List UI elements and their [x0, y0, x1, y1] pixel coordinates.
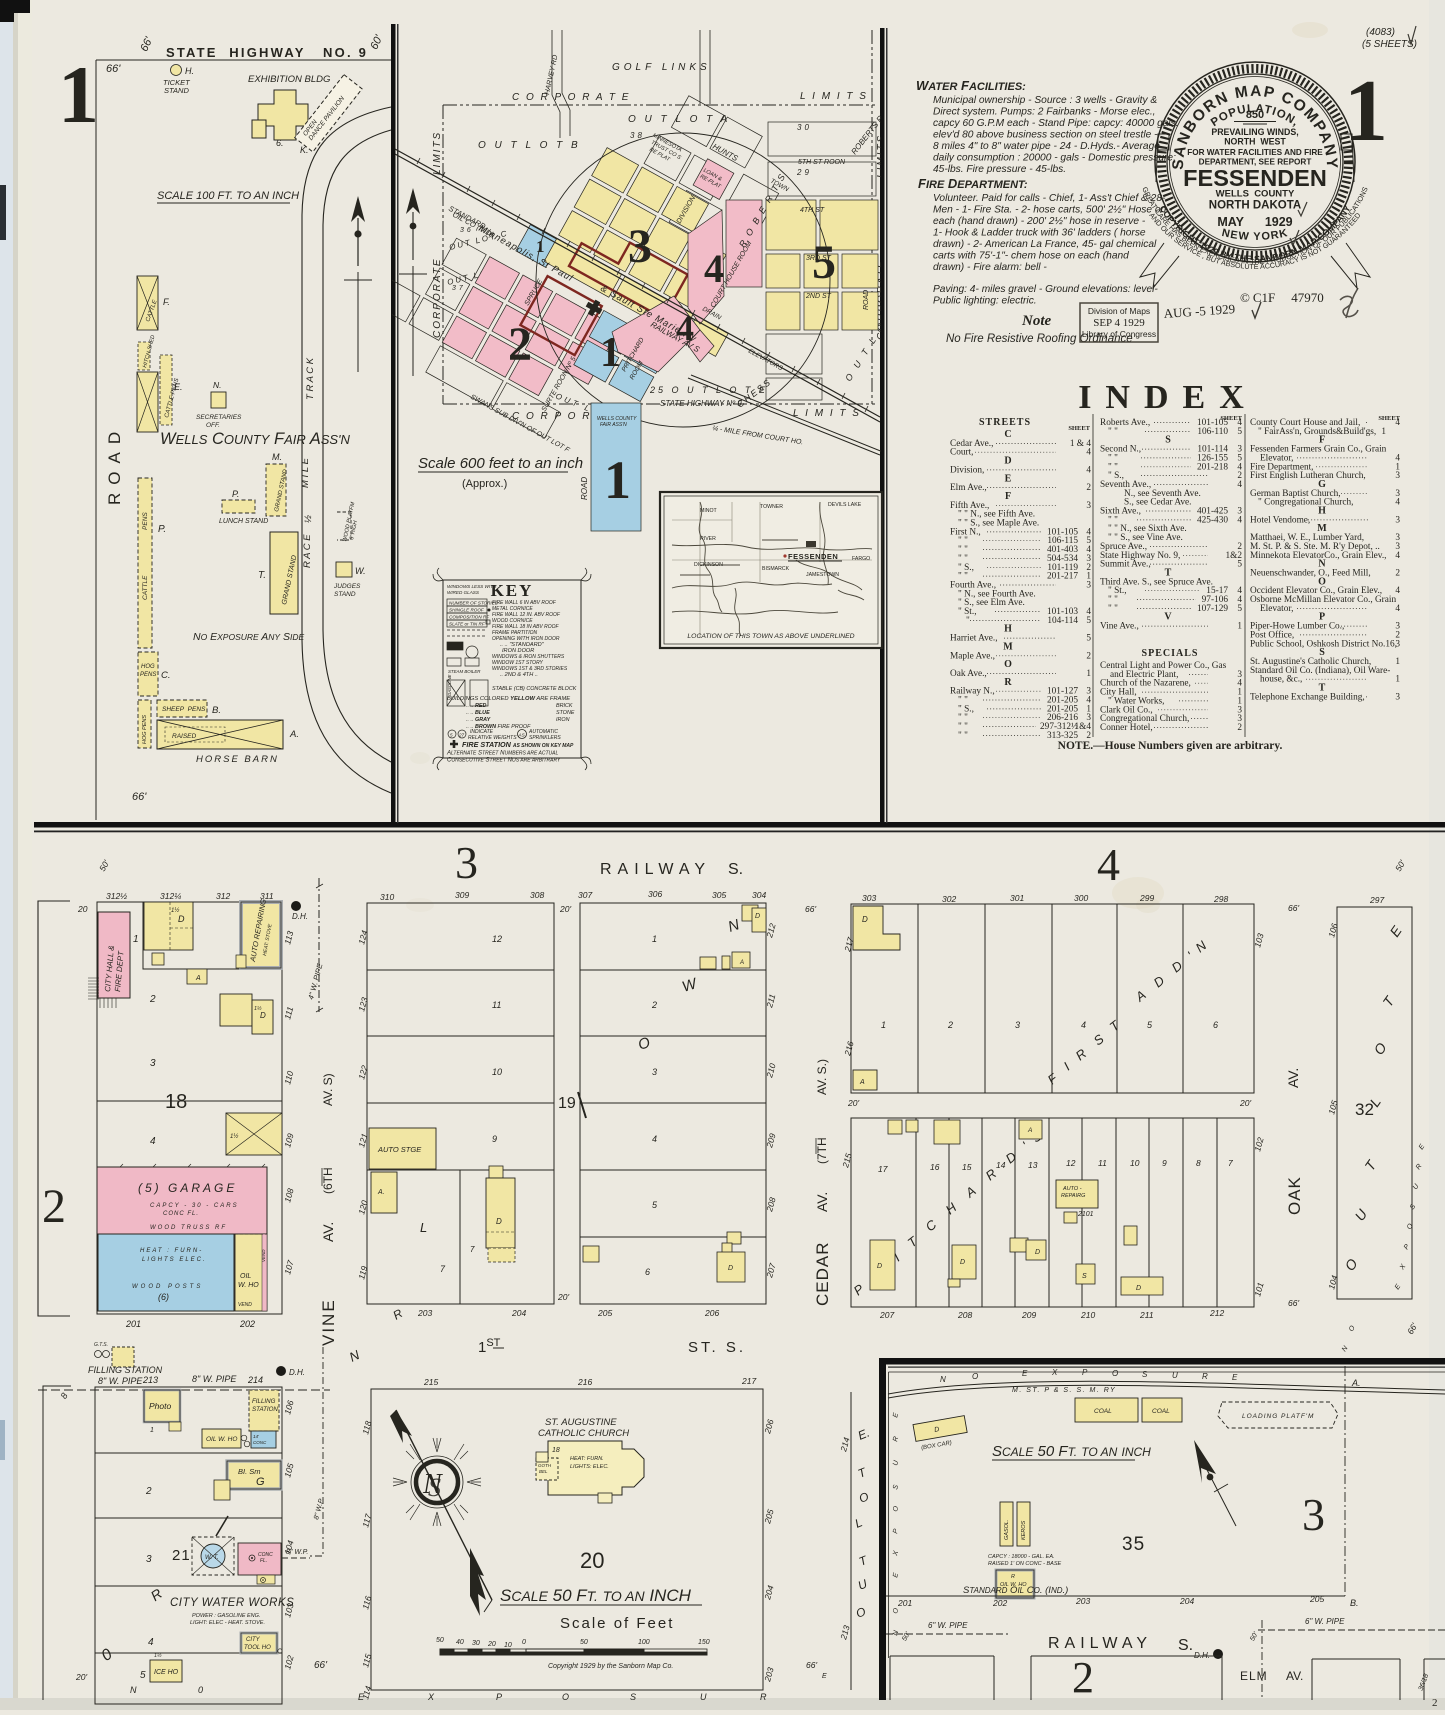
- svg-text:1: 1: [133, 934, 139, 945]
- svg-text:1½: 1½: [171, 907, 179, 914]
- svg-text:NORTH DAKOTA: NORTH DAKOTA: [1209, 200, 1301, 212]
- svg-text:OFF.: OFF.: [206, 422, 220, 429]
- svg-text:Sixth Ave.,: Sixth Ave.,: [1100, 507, 1141, 517]
- svg-text:310: 310: [380, 892, 394, 902]
- svg-text:Scale of Feet: Scale of Feet: [560, 1615, 674, 1632]
- svg-text:4: 4: [1395, 418, 1400, 428]
- svg-text:S: S: [1165, 435, 1171, 446]
- svg-text:12: 12: [1066, 1158, 1076, 1168]
- svg-text:JUDGES: JUDGES: [333, 583, 361, 590]
- svg-text:202: 202: [992, 1598, 1007, 1608]
- svg-text:E: E: [1005, 473, 1012, 484]
- svg-text:40: 40: [456, 1639, 464, 1646]
- svg-text:150: 150: [698, 1639, 710, 1646]
- svg-text:OAK: OAK: [1285, 1176, 1304, 1215]
- svg-text:M. ST. P & S. S. M. RY: M. ST. P & S. S. M. RY: [1012, 1387, 1116, 1394]
- svg-text:66': 66': [132, 791, 147, 803]
- svg-text:E: E: [1022, 1369, 1028, 1378]
- svg-text:2: 2: [1395, 569, 1400, 579]
- svg-text:30: 30: [797, 123, 812, 132]
- svg-text:Municipal ownership - Source :: Municipal ownership - Source : 3 wells -…: [933, 95, 1157, 106]
- svg-text:4: 4: [1237, 480, 1242, 490]
- svg-text:CATTLE: CATTLE: [142, 575, 149, 600]
- svg-text:EXHIBITION BLDG: EXHIBITION BLDG: [248, 74, 330, 85]
- svg-text:Public lighting: electric.: Public lighting: electric.: [933, 296, 1037, 307]
- svg-text:1: 1: [600, 330, 621, 376]
- svg-text:4: 4: [652, 1134, 657, 1144]
- svg-text:45-lbs. Fire pressure - 45-lb: 45-lbs. Fire pressure - 45-lbs.: [933, 164, 1066, 175]
- svg-text:1: 1: [652, 934, 657, 944]
- svg-text:O U T L O T A: O U T L O T A: [628, 114, 730, 125]
- svg-text:O U T L O T B: O U T L O T B: [478, 140, 581, 151]
- svg-text:1: 1: [1237, 622, 1242, 632]
- svg-text:20': 20': [1239, 1098, 1251, 1108]
- svg-text:3: 3: [150, 1058, 156, 1069]
- svg-text:PENS: PENS: [142, 512, 149, 530]
- svg-text:8" W. PIPE: 8" W. PIPE: [98, 1376, 143, 1386]
- svg-text:SECRETARIES: SECRETARIES: [196, 414, 242, 421]
- svg-text:104-114: 104-114: [1047, 616, 1078, 626]
- svg-text:211: 211: [1139, 1310, 1154, 1320]
- svg-text:1: 1: [1086, 669, 1091, 679]
- svg-text:T R A C K: T R A C K: [305, 357, 316, 400]
- svg-text:PENS: PENS: [140, 672, 156, 678]
- svg-text:5: 5: [450, 733, 453, 738]
- svg-text:1: 1: [58, 49, 99, 140]
- svg-text:32: 32: [1355, 1100, 1374, 1119]
- svg-text:FL.: FL.: [260, 1558, 267, 1564]
- svg-text:309: 309: [455, 890, 469, 900]
- svg-text:0: 0: [198, 1685, 203, 1695]
- svg-text:8" W. PIPE: 8" W. PIPE: [192, 1374, 237, 1384]
- svg-text:303: 303: [862, 893, 876, 903]
- svg-text:Harriet Ave.,: Harriet Ave.,: [950, 634, 998, 644]
- svg-text:B.: B.: [1350, 1598, 1359, 1608]
- svg-text:Elevator,: Elevator,: [1260, 604, 1293, 614]
- svg-text:U: U: [700, 1692, 709, 1702]
- svg-text:300: 300: [1074, 893, 1088, 903]
- svg-text:Vine Ave.,: Vine Ave.,: [1100, 622, 1139, 632]
- svg-text:A: A: [859, 1079, 865, 1086]
- svg-text:216: 216: [577, 1377, 592, 1387]
- svg-text:COAL: COAL: [1094, 1408, 1112, 1415]
- svg-text:NOTE.—House Numbers given are: NOTE.—House Numbers given are arbitrary.: [1058, 740, 1283, 752]
- svg-text:312¼: 312¼: [160, 891, 181, 901]
- svg-text:7: 7: [470, 1245, 475, 1254]
- svg-text:N: N: [130, 1685, 137, 1695]
- svg-text:JAMESTOWN: JAMESTOWN: [806, 572, 839, 578]
- svg-text:19: 19: [558, 1095, 576, 1112]
- svg-text:HORSE BARN: HORSE BARN: [196, 754, 279, 765]
- svg-text:AUTO -: AUTO -: [1062, 1186, 1082, 1192]
- svg-text:D: D: [1136, 1285, 1141, 1292]
- svg-text:CAPCY - 30 - CARS: CAPCY - 30 - CARS: [150, 1203, 239, 1209]
- svg-text:2: 2: [1237, 723, 1242, 733]
- svg-text:OIL W. HO: OIL W. HO: [206, 1436, 237, 1443]
- svg-text:Railway N.,: Railway N.,: [950, 687, 995, 697]
- svg-text:IRON: IRON: [556, 717, 570, 723]
- svg-text:Elm Ave.,: Elm Ave.,: [950, 483, 987, 493]
- svg-text:WOOD TRUSS RF: WOOD TRUSS RF: [150, 1225, 227, 1231]
- svg-text:R: R: [1011, 1574, 1015, 1580]
- svg-text:4: 4: [1097, 839, 1120, 890]
- svg-text:F.: F.: [163, 297, 170, 307]
- svg-text:A: A: [739, 960, 744, 966]
- svg-text:S.: S.: [1178, 1637, 1193, 1654]
- svg-text:TOOL HO: TOOL HO: [244, 1645, 271, 1651]
- svg-text:WATER FACILITIES:: WATER FACILITIES:: [916, 78, 1026, 93]
- svg-text:(Approx.): (Approx.): [462, 478, 507, 490]
- svg-text:HEAT: FURN.: HEAT: FURN.: [570, 1456, 604, 1462]
- svg-text:1½: 1½: [154, 1652, 162, 1659]
- svg-text:35: 35: [1122, 1534, 1145, 1555]
- svg-text:N.: N.: [213, 380, 222, 390]
- svg-text:(6TH: (6TH: [321, 1167, 335, 1194]
- svg-text:E: E: [822, 1673, 827, 1680]
- svg-text:(4083): (4083): [1366, 27, 1395, 38]
- svg-text:2: 2: [1086, 651, 1091, 661]
- svg-text:1: 1: [881, 1020, 886, 1030]
- svg-text:E: E: [1232, 1373, 1238, 1382]
- svg-text:FAIR ASS'N: FAIR ASS'N: [600, 422, 627, 428]
- svg-text:1: 1: [604, 450, 631, 510]
- svg-text:2ND ST: 2ND ST: [805, 293, 832, 300]
- svg-text:First English Lutheran Church,: First English Lutheran Church,: [1250, 471, 1366, 481]
- svg-text:13: 13: [1028, 1160, 1038, 1170]
- svg-text:D: D: [1004, 456, 1011, 467]
- svg-text:.. .. BLU: .. .. BLUE: [466, 710, 490, 716]
- svg-text:297: 297: [1369, 895, 1384, 905]
- svg-text:½: ½: [303, 515, 314, 523]
- svg-text:203: 203: [1075, 1596, 1090, 1606]
- svg-text:10: 10: [1130, 1158, 1140, 1168]
- svg-text:Copyright 1929 by the Sanborn: Copyright 1929 by the Sanborn Map Co.: [548, 1663, 673, 1670]
- svg-text:3: 3: [1395, 515, 1400, 525]
- svg-text:66': 66': [1288, 903, 1299, 913]
- svg-text:VINE: VINE: [319, 1298, 338, 1346]
- svg-text:SPECIALS: SPECIALS: [1142, 648, 1199, 659]
- svg-text:209: 209: [1021, 1310, 1036, 1320]
- svg-text:66': 66': [1288, 1298, 1299, 1308]
- svg-text:CEDAR: CEDAR: [813, 1241, 832, 1306]
- svg-text:27: 27: [458, 733, 465, 738]
- svg-text:D: D: [755, 913, 760, 920]
- svg-text:ROAD: ROAD: [580, 477, 589, 500]
- svg-text:20: 20: [487, 1641, 496, 1648]
- svg-text:L I M I T S: L I M I T S: [800, 91, 868, 102]
- svg-text:66': 66': [314, 1660, 328, 1671]
- svg-text:302: 302: [942, 894, 956, 904]
- svg-text:3: 3: [1395, 692, 1400, 702]
- svg-text:305: 305: [712, 890, 726, 900]
- svg-text:H: H: [1318, 506, 1326, 517]
- svg-text:20': 20': [847, 1098, 859, 1108]
- svg-text:E.: E.: [174, 382, 183, 392]
- svg-text:2: 2: [1432, 1697, 1438, 1709]
- svg-text:BEL: BEL: [539, 1469, 548, 1474]
- svg-text:850: 850: [1246, 109, 1264, 121]
- svg-text:LIGHTS: ELEC.: LIGHTS: ELEC.: [570, 1464, 609, 1470]
- svg-text:LOADING PLATF'M: LOADING PLATF'M: [1242, 1413, 1314, 1420]
- svg-text:LUNCH STAND: LUNCH STAND: [219, 518, 268, 525]
- svg-text:BUILDINGS COLORED YELLOW ARE F: BUILDINGS COLORED YELLOW ARE FRAME: [447, 696, 570, 702]
- svg-text:O: O: [562, 1692, 571, 1702]
- svg-text:R: R: [1202, 1372, 1208, 1381]
- svg-text:ST. S.: ST. S.: [688, 1339, 746, 1356]
- svg-text:P.: P.: [158, 524, 166, 535]
- svg-text:M I L E: M I L E: [300, 457, 311, 488]
- svg-text:(7TH: (7TH: [815, 1137, 829, 1164]
- svg-text:298: 298: [1213, 894, 1228, 904]
- svg-text:37: 37: [452, 285, 466, 292]
- svg-text:.. .. RED: .. .. RED: [466, 703, 486, 709]
- svg-text:(5) GARAGE: (5) GARAGE: [138, 1181, 237, 1195]
- svg-text:.. .. GRA: .. .. GRAY: [466, 717, 491, 723]
- svg-text:VEND: VEND: [238, 1302, 252, 1308]
- svg-text:4: 4: [1395, 604, 1400, 614]
- svg-text:CATHOLIC CHURCH: CATHOLIC CHURCH: [538, 1428, 629, 1439]
- svg-text:ELM: ELM: [1240, 1669, 1268, 1683]
- svg-text:308: 308: [530, 890, 544, 900]
- svg-text:12: 12: [492, 934, 502, 944]
- svg-text:" ": " ": [1108, 604, 1118, 614]
- svg-text:201: 201: [125, 1319, 141, 1329]
- svg-text:1: 1: [1395, 657, 1400, 667]
- svg-text:STANDARD OIL CO. (IND.): STANDARD OIL CO. (IND.): [963, 1585, 1068, 1596]
- svg-text:" ": " ": [1108, 427, 1118, 437]
- svg-text:LOCATION OF THIS TOWN AS ABOVE: LOCATION OF THIS TOWN AS ABOVE UNDERLINE…: [687, 633, 854, 640]
- svg-text:4TH ST: 4TH ST: [800, 207, 825, 214]
- svg-text:STEAM BOILER: STEAM BOILER: [448, 669, 481, 674]
- svg-text:STATE HIGHWAY Nº 9: STATE HIGHWAY Nº 9: [660, 399, 742, 408]
- svg-text:50: 50: [436, 1637, 444, 1644]
- svg-text:SCALE 50 FT. TO AN INCH: SCALE 50 FT. TO AN INCH: [500, 1586, 692, 1605]
- svg-text:SHEET: SHEET: [1068, 425, 1090, 432]
- svg-text:RIVER: RIVER: [700, 536, 716, 542]
- svg-text:": ": [966, 616, 970, 626]
- svg-text:2: 2: [42, 1180, 66, 1233]
- svg-text:SLATE or TIN RF: SLATE or TIN RF: [449, 622, 486, 627]
- svg-text:D: D: [496, 1217, 502, 1226]
- svg-text:SHEEP PENS: SHEEP PENS: [162, 706, 206, 713]
- svg-text:Photo: Photo: [149, 1401, 171, 1411]
- svg-text:204: 204: [1179, 1596, 1194, 1606]
- svg-text:T.: T.: [258, 570, 266, 581]
- svg-text:1- Hook & Ladder truck with: 1- Hook & Ladder truck with 36' ladders …: [933, 228, 1146, 239]
- svg-text:HEAT : FURN-: HEAT : FURN-: [140, 1248, 203, 1254]
- svg-text:15: 15: [962, 1162, 972, 1172]
- svg-text:Scale 600 feet to an inch: Scale 600 feet to an inch: [418, 455, 583, 472]
- svg-text:BISMARCK: BISMARCK: [762, 566, 790, 572]
- svg-text:2: 2: [947, 1020, 953, 1030]
- svg-text:LIMITS: LIMITS: [432, 131, 443, 175]
- svg-text:Men - 1- Fire Sta. - 2- hose c: Men - 1- Fire Sta. - 2- hose carts, 500'…: [933, 205, 1167, 216]
- svg-text:carts with 75'-1"- chem hose: carts with 75'-1"- chem hose on each (ha…: [933, 251, 1129, 262]
- svg-text:E: E: [358, 1692, 366, 1702]
- svg-text:213: 213: [142, 1375, 158, 1385]
- svg-text:2: 2: [145, 1486, 152, 1497]
- svg-text:2: 2: [149, 994, 156, 1005]
- svg-text:66': 66': [806, 1660, 817, 1670]
- svg-text:INDEX: INDEX: [1078, 379, 1258, 416]
- svg-text:O: O: [972, 1372, 978, 1381]
- svg-text:217: 217: [741, 1376, 756, 1386]
- svg-text:FIRE DEPARTMENT:: FIRE DEPARTMENT:: [918, 176, 1028, 191]
- svg-text:14: 14: [996, 1160, 1006, 1170]
- svg-text:AV. S): AV. S): [321, 1073, 335, 1106]
- svg-text:D: D: [1035, 1249, 1040, 1256]
- svg-text:1½: 1½: [230, 1133, 238, 1140]
- svg-text:SHINGLE ROOF: SHINGLE ROOF: [449, 608, 485, 613]
- svg-text:WINDOWS LESS WITH: WINDOWS LESS WITH: [447, 584, 497, 589]
- svg-text:3: 3: [1395, 471, 1400, 481]
- svg-text:AV.: AV.: [320, 1222, 336, 1242]
- svg-text:Oak Ave.,: Oak Ave.,: [950, 669, 987, 679]
- svg-text:202: 202: [239, 1319, 255, 1329]
- svg-text:CONSECUTIVE STREET NOS ARE ARB: CONSECUTIVE STREET NOS ARE ARBITRARY: [447, 758, 561, 764]
- svg-text:5: 5: [1237, 560, 1242, 570]
- svg-text:CONC: CONC: [253, 1440, 267, 1445]
- svg-text:O: O: [1112, 1369, 1118, 1378]
- svg-text:2: 2: [1072, 1653, 1094, 1702]
- svg-text:Telephone Exchange Building,: Telephone Exchange Building,: [1250, 692, 1365, 702]
- svg-text:306: 306: [648, 889, 662, 899]
- svg-text:3: 3: [1015, 1020, 1020, 1030]
- svg-text:11: 11: [492, 1000, 501, 1010]
- svg-text:106-110: 106-110: [1197, 427, 1228, 437]
- svg-text:425-430: 425-430: [1197, 515, 1228, 525]
- svg-text:SCALE 50 FT. TO AN INCH: SCALE 50 FT. TO AN INCH: [992, 1443, 1151, 1460]
- svg-text:D.H.: D.H.: [289, 1368, 305, 1377]
- svg-text:Conner Hotel,: Conner Hotel,: [1100, 723, 1153, 733]
- svg-text:L I M I T S: L I M I T S: [793, 408, 861, 419]
- svg-text:TOWNER: TOWNER: [760, 504, 783, 510]
- svg-text:S: S: [1082, 1273, 1087, 1280]
- svg-text:M.: M.: [272, 452, 282, 462]
- svg-text:C: C: [1004, 429, 1011, 440]
- svg-text:POWER : GASOLINE ENG.: POWER : GASOLINE ENG.: [192, 1613, 260, 1619]
- svg-text:203: 203: [417, 1308, 432, 1318]
- svg-text:21: 21: [172, 1547, 191, 1564]
- svg-text:DEVILS LAKE: DEVILS LAKE: [828, 502, 862, 508]
- svg-text:201-217: 201-217: [1047, 572, 1078, 582]
- svg-text:5: 5: [140, 1670, 146, 1681]
- svg-text:5: 5: [1237, 604, 1242, 614]
- svg-text:1½: 1½: [254, 1005, 262, 1012]
- svg-text:L: L: [420, 1220, 427, 1235]
- svg-text:100: 100: [638, 1639, 650, 1646]
- svg-text:FESSENDEN: FESSENDEN: [1183, 165, 1327, 191]
- svg-text:H.: H.: [185, 66, 194, 76]
- svg-text:D: D: [728, 1265, 733, 1272]
- svg-text:D: D: [862, 915, 868, 924]
- svg-text:daily consumption : 20000 - ga: daily consumption : 20000 - gals - Domes…: [933, 153, 1176, 164]
- svg-text:X: X: [1051, 1368, 1058, 1377]
- svg-text:D: D: [260, 1011, 266, 1020]
- svg-text:R: R: [760, 1692, 769, 1702]
- svg-text:R A C E: R A C E: [302, 534, 313, 568]
- svg-text:NO EXPOSURE ANY SIDE: NO EXPOSURE ANY SIDE: [193, 631, 304, 643]
- svg-text:P.: P.: [232, 489, 239, 499]
- svg-text:66': 66': [805, 904, 816, 914]
- svg-text:20: 20: [580, 1548, 604, 1573]
- svg-text:Maple Ave.,: Maple Ave.,: [950, 651, 995, 661]
- svg-text:201-218: 201-218: [1197, 462, 1228, 472]
- svg-text:Note: Note: [1021, 313, 1052, 329]
- svg-text:11: 11: [1098, 1158, 1107, 1168]
- svg-text:9: 9: [492, 1134, 497, 1144]
- svg-text:NORTH WEST: NORTH WEST: [1224, 137, 1286, 147]
- svg-text:capcy 60 G.P.M each - Stand: capcy 60 G.P.M each - Stand Pipe: capcy:…: [933, 118, 1179, 129]
- svg-text:HOG PENS: HOG PENS: [142, 715, 148, 744]
- svg-text:3: 3: [1086, 501, 1091, 511]
- svg-text:RAILWAY: RAILWAY: [1048, 1635, 1152, 1652]
- svg-text:" ": " ": [958, 731, 968, 741]
- svg-text:212: 212: [1209, 1308, 1224, 1318]
- svg-text:107-129: 107-129: [1197, 604, 1228, 614]
- svg-text:2: 2: [1086, 483, 1091, 493]
- svg-text:D: D: [178, 914, 185, 924]
- svg-text:STATE HIGHWAY NO. 9: STATE HIGHWAY NO. 9: [166, 45, 368, 60]
- svg-text:1: 1: [150, 1427, 154, 1434]
- svg-text:V: V: [1164, 612, 1172, 623]
- svg-text:A: A: [195, 975, 201, 982]
- svg-text:307: 307: [578, 890, 592, 900]
- svg-text:X: X: [427, 1692, 436, 1702]
- svg-text:AV.: AV.: [1286, 1669, 1303, 1683]
- svg-text:A.: A.: [1351, 1378, 1361, 1388]
- svg-text:4: 4: [148, 1637, 154, 1648]
- svg-text:1: 1: [1344, 63, 1388, 160]
- svg-text:Second N.,: Second N.,: [1100, 445, 1141, 455]
- svg-text:B.: B.: [212, 705, 221, 716]
- svg-text:G.T.S.: G.T.S.: [94, 1342, 108, 1348]
- svg-text:C O R P O R A T E: C O R P O R A T E: [512, 92, 630, 103]
- svg-text:P: P: [496, 1692, 504, 1702]
- svg-text:D: D: [877, 1263, 882, 1270]
- svg-text:STAND: STAND: [164, 86, 189, 95]
- svg-text:9: 9: [1162, 1158, 1167, 1168]
- svg-text:Division,: Division,: [950, 465, 984, 475]
- svg-text:30: 30: [472, 1640, 480, 1647]
- svg-text:8: 8: [1196, 1158, 1201, 1168]
- svg-text:STAND: STAND: [334, 591, 356, 598]
- svg-text:drawn) - Fire alarm: bell -: drawn) - Fire alarm: bell -: [933, 262, 1047, 273]
- svg-text:W.: W.: [355, 566, 366, 576]
- svg-text:WOOD POSTS: WOOD POSTS: [132, 1284, 203, 1290]
- svg-text:3RD ST: 3RD ST: [806, 255, 832, 262]
- svg-text:O: O: [1004, 659, 1012, 670]
- svg-text:4: 4: [1086, 465, 1091, 475]
- svg-text:" Congregational Church,: " Congregational Church,: [1258, 498, 1353, 508]
- svg-text:299: 299: [1139, 893, 1154, 903]
- svg-text:BRICK: BRICK: [556, 703, 573, 709]
- svg-text:SEP 4 1929: SEP 4 1929: [1093, 317, 1145, 329]
- svg-text:7: 7: [1228, 1158, 1233, 1168]
- svg-text:AV.: AV.: [1285, 1068, 1301, 1088]
- svg-text:DICKINSON: DICKINSON: [694, 562, 723, 568]
- svg-text:6.: 6.: [276, 138, 284, 148]
- svg-text:FESSENDEN: FESSENDEN: [788, 552, 838, 561]
- svg-text:5: 5: [1237, 427, 1242, 437]
- svg-text:(6): (6): [158, 1292, 169, 1302]
- svg-text:14': 14': [253, 1434, 259, 1439]
- svg-text:CAPCY : 18000 - GAL. EA.: CAPCY : 18000 - GAL. EA.: [988, 1554, 1055, 1560]
- svg-text:D.H.: D.H.: [292, 912, 308, 921]
- svg-text:COMPOSITION RF: COMPOSITION RF: [449, 615, 490, 620]
- svg-text:N: N: [940, 1375, 946, 1384]
- svg-text:AV. S.): AV. S.): [815, 1059, 829, 1095]
